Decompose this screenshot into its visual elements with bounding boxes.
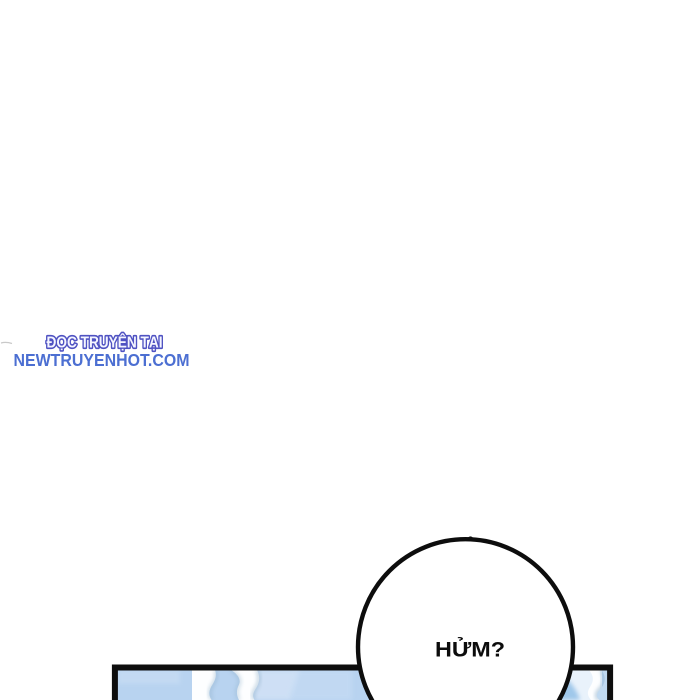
svg-text:NEWTRUYENHOT.COM: NEWTRUYENHOT.COM [14, 350, 190, 370]
svg-text:ĐỌC TRUYỆN TẠI: ĐỌC TRUYỆN TẠI [47, 333, 163, 352]
svg-text:HỬM?: HỬM? [435, 637, 505, 662]
